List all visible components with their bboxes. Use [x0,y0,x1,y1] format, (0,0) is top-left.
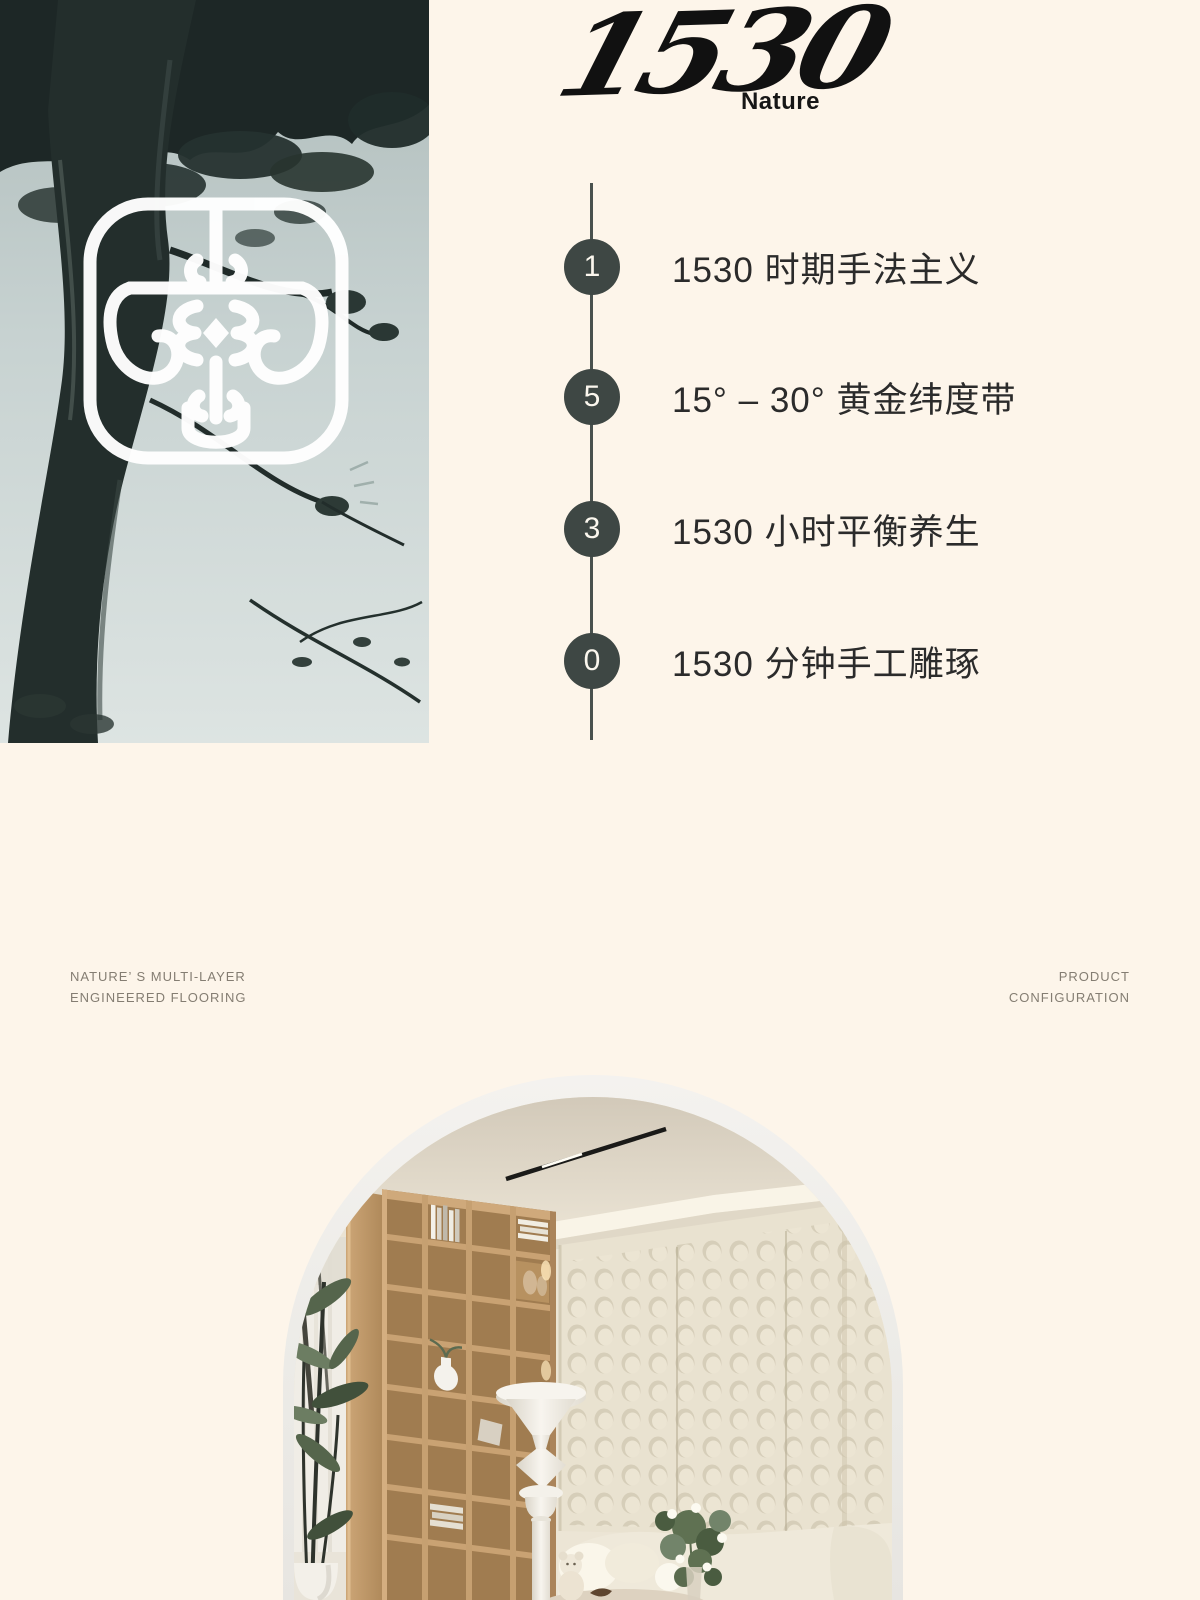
timeline-item-circle: 3 [564,501,620,557]
interior-photo-illustration [294,1097,892,1600]
page-root: { "brand": { "logotype": "1530", "wordma… [0,0,1200,1600]
timeline-item-label: 1530 分钟手工雕琢 [672,636,981,687]
caption-line: NATURE’ S MULTI-LAYER [70,966,246,987]
timeline-item-3: 3 1530 小时平衡养生 [564,501,981,557]
product-caption: PRODUCT CONFIGURATION [1009,966,1130,1008]
tree-photo-illustration [0,0,429,743]
timeline-item-4: 0 1530 分钟手工雕琢 [564,633,981,689]
caption-line: PRODUCT [1009,966,1130,987]
flooring-caption: NATURE’ S MULTI-LAYER ENGINEERED FLOORIN… [70,966,246,1008]
timeline-item-label: 1530 时期手法主义 [672,242,981,293]
timeline-item-2: 5 15° – 30° 黄金纬度带 [564,369,1017,425]
timeline-item-circle: 1 [564,239,620,295]
interior-photo [294,1097,892,1600]
timeline-item-digit: 1 [584,250,601,284]
caption-line: ENGINEERED FLOORING [70,987,246,1008]
timeline-item-digit: 0 [584,644,601,678]
timeline-item-label: 15° – 30° 黄金纬度带 [672,372,1017,423]
tree-photo [0,0,429,743]
timeline-item-digit: 5 [584,380,601,414]
timeline-item-circle: 0 [564,633,620,689]
timeline-item-circle: 5 [564,369,620,425]
brand-wordmark: Nature [741,88,820,116]
brand-logo: 1530 Nature [548,6,820,128]
brand-logotype: 1530 [548,0,894,109]
arch-window [283,1075,903,1600]
timeline-item-1: 1 1530 时期手法主义 [564,239,981,295]
caption-line: CONFIGURATION [1009,987,1130,1008]
timeline-item-digit: 3 [584,512,601,546]
timeline-item-label: 1530 小时平衡养生 [672,504,981,555]
